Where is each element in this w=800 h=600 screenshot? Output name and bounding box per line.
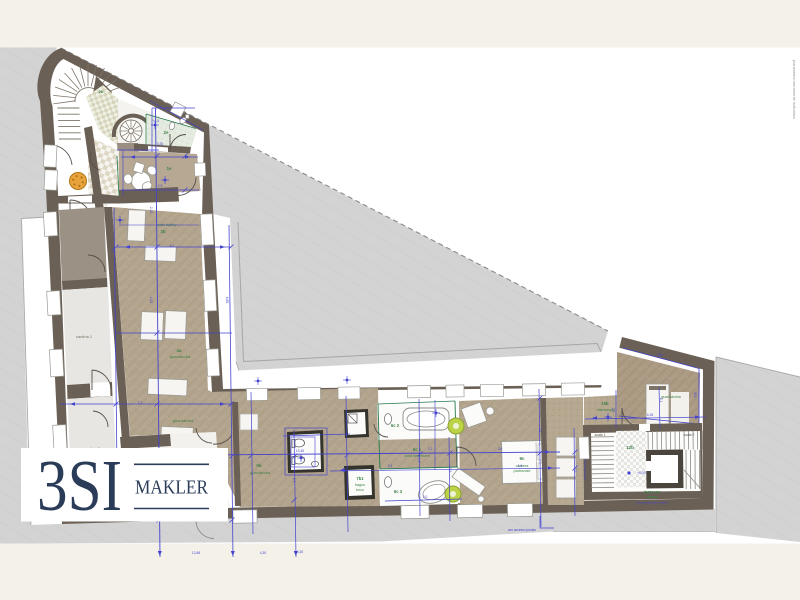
svg-text:guardaroba: guardaroba <box>661 395 681 399</box>
svg-text:7,3: 7,3 <box>138 401 143 405</box>
svg-text:6c 1: 6c 1 <box>413 447 422 452</box>
svg-text:cantina 1: cantina 1 <box>76 334 93 339</box>
svg-text:12b: 12b <box>626 445 634 450</box>
svg-text:1,2: 1,2 <box>342 468 346 473</box>
svg-text:6c 2: 6c 2 <box>391 423 400 428</box>
svg-text:6,85: 6,85 <box>225 297 229 304</box>
svg-text:planimetria meramente indicati: planimetria meramente indicativa <box>792 60 797 119</box>
svg-text:1,1: 1,1 <box>417 458 421 463</box>
svg-text:2,10: 2,10 <box>149 207 153 214</box>
svg-text:0,9: 0,9 <box>448 468 452 473</box>
svg-text:padronale: padronale <box>514 469 531 473</box>
svg-text:2,0: 2,0 <box>423 495 428 499</box>
svg-text:2,4: 2,4 <box>388 464 393 468</box>
svg-text:352: 352 <box>693 392 697 398</box>
svg-text:guardaroba: guardaroba <box>170 354 191 359</box>
svg-text:4,1: 4,1 <box>170 244 175 248</box>
svg-text:scala 1: scala 1 <box>595 433 606 437</box>
svg-text:sala hobby: sala hobby <box>157 222 176 227</box>
svg-text:15b: 15b <box>601 401 609 406</box>
svg-text:9c: 9c <box>519 456 525 461</box>
svg-text:2,2: 2,2 <box>111 248 115 253</box>
svg-text:MAKLER: MAKLER <box>135 477 209 499</box>
svg-text:3,25: 3,25 <box>157 142 164 146</box>
svg-text:guardaroba: guardaroba <box>250 470 271 475</box>
svg-text:6c 3: 6c 3 <box>394 489 403 494</box>
svg-text:+0,00: +0,00 <box>637 471 646 475</box>
svg-text:4,30: 4,30 <box>297 550 304 554</box>
svg-text:7b1: 7b1 <box>356 476 364 481</box>
svg-text:3,8: 3,8 <box>498 447 503 451</box>
svg-text:2e: 2e <box>163 130 169 135</box>
svg-text:4,15: 4,15 <box>647 413 654 417</box>
svg-text:2,2: 2,2 <box>428 447 433 451</box>
svg-text:1e: 1e <box>166 166 172 171</box>
svg-text:con accesso privato: con accesso privato <box>508 528 536 532</box>
svg-text:2,5: 2,5 <box>573 468 577 473</box>
svg-text:12,65: 12,65 <box>192 551 200 555</box>
svg-text:1,6: 1,6 <box>518 464 523 468</box>
svg-text:zona benessere: zona benessere <box>404 454 430 458</box>
svg-text:4a: 4a <box>176 348 182 353</box>
svg-text:10,45: 10,45 <box>296 449 304 453</box>
svg-text:4,30: 4,30 <box>260 551 267 555</box>
svg-text:scala 2: scala 2 <box>684 433 695 437</box>
svg-text:3SI: 3SI <box>37 445 122 526</box>
svg-text:1,3: 1,3 <box>611 408 615 413</box>
svg-text:1,7: 1,7 <box>292 478 296 483</box>
svg-text:3b: 3b <box>160 229 166 234</box>
svg-text:2,1: 2,1 <box>659 398 663 403</box>
svg-text:2b: 2b <box>99 89 104 94</box>
svg-text:2,9: 2,9 <box>158 184 163 188</box>
svg-text:con accesso alle cantine: con accesso alle cantine <box>636 501 669 505</box>
svg-text:scala: scala <box>647 494 658 499</box>
svg-text:6b: 6b <box>256 463 262 468</box>
svg-text:turco: turco <box>356 488 364 492</box>
svg-text:+1,5: +1,5 <box>153 119 160 123</box>
svg-text:bagno: bagno <box>355 483 365 487</box>
svg-text:guardaroba: guardaroba <box>173 418 194 423</box>
svg-text:4,52: 4,52 <box>149 297 153 304</box>
svg-text:3,6: 3,6 <box>538 428 542 433</box>
